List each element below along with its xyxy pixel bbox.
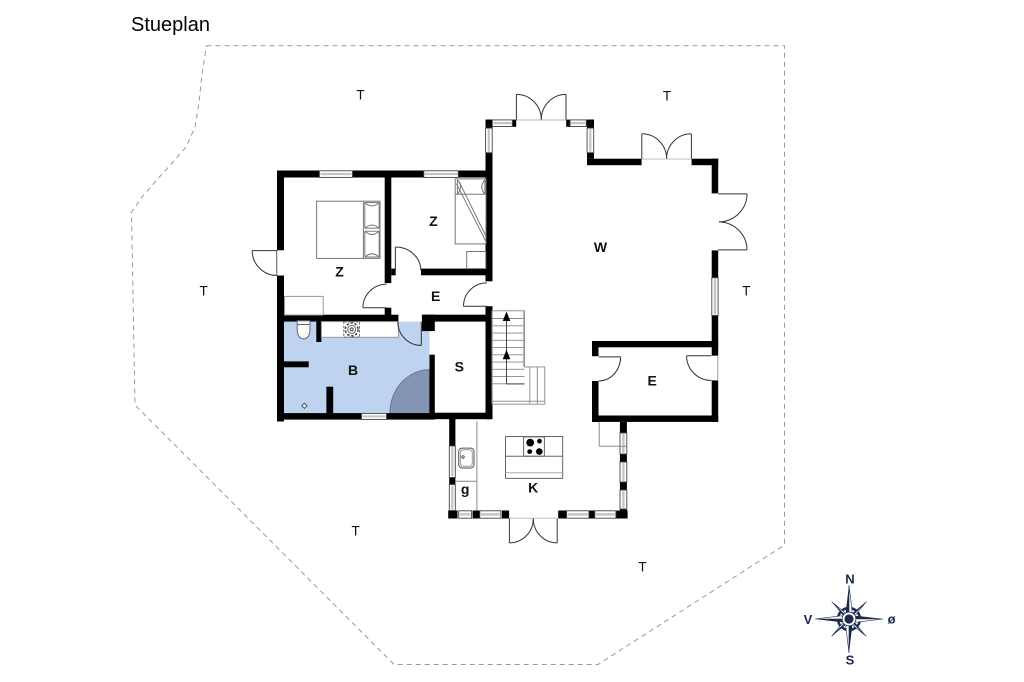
svg-text:Stueplan: Stueplan xyxy=(131,14,210,36)
svg-text:E: E xyxy=(431,288,440,304)
svg-text:ø: ø xyxy=(888,612,896,627)
svg-text:Z: Z xyxy=(429,213,438,229)
svg-text:T: T xyxy=(663,89,671,104)
svg-text:S: S xyxy=(455,359,464,375)
svg-text:Z: Z xyxy=(335,264,344,280)
svg-text:K: K xyxy=(528,480,538,496)
svg-text:T: T xyxy=(351,524,359,539)
svg-text:E: E xyxy=(648,373,657,389)
svg-text:V: V xyxy=(804,612,813,627)
svg-text:T: T xyxy=(638,560,646,575)
svg-text:W: W xyxy=(594,239,608,255)
svg-text:T: T xyxy=(742,284,750,299)
svg-text:T: T xyxy=(356,88,364,103)
svg-text:S: S xyxy=(846,653,855,668)
svg-text:g: g xyxy=(461,481,470,497)
svg-text:T: T xyxy=(199,283,207,298)
svg-text:N: N xyxy=(845,572,854,587)
svg-text:B: B xyxy=(348,362,358,378)
